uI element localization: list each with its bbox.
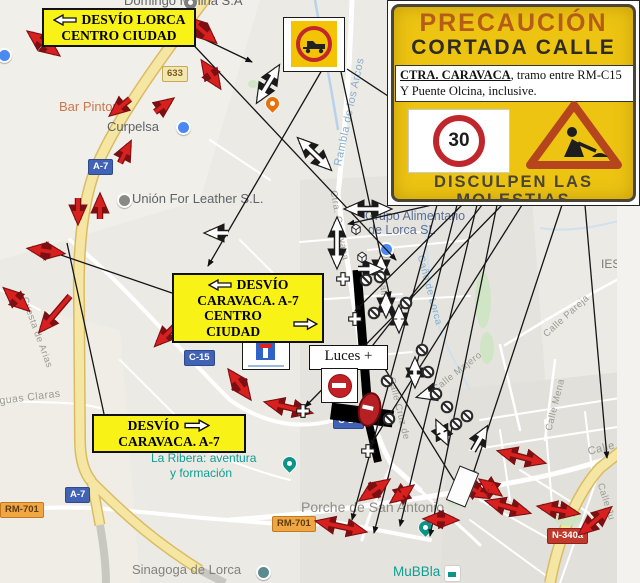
traffic-lights-label: Luces +: [309, 345, 388, 370]
no-entry-icon: [369, 308, 380, 319]
crossing-icon: [337, 273, 350, 286]
sign-detail-rest: , tramo entre RM-C15: [511, 68, 622, 82]
dead-end-icon: [256, 341, 275, 360]
block-icon: [358, 252, 366, 263]
sign-detail: CTRA. CARAVACA, tramo entre RM-C15 Y Pue…: [395, 65, 636, 102]
sign-subtitle: CORTADA CALLE: [394, 36, 633, 59]
no-entry-icon: [462, 411, 473, 422]
no-entry-icon: [384, 414, 395, 425]
no-entry-sign-box: [321, 368, 358, 403]
arrow-left-icon: [208, 279, 232, 291]
arrow-right-icon: [184, 419, 210, 432]
arrow-left-icon: [53, 14, 77, 26]
no-entry-icon: [431, 389, 442, 400]
no-entry-icon: [401, 298, 412, 309]
no-trucks-sign-box: [283, 17, 345, 72]
sign-detail-road: CTRA. CARAVACA: [400, 68, 511, 82]
no-entry-icon: [382, 376, 393, 387]
sign-title: PRECAUCIÓN: [394, 11, 633, 36]
annotated-map: Domingo Molina S.A Bar Pintor Curpelsa U…: [0, 0, 640, 583]
arrow-right-icon: [293, 317, 318, 331]
detour-text: DESVÍO LORCA: [82, 12, 186, 28]
no-entry-icon: [417, 345, 428, 356]
sign-detail-line2: Y Puente Olcina, inclusive.: [400, 84, 537, 98]
detour-label-caravaca-centro: DESVÍO CARAVACA. A-7 CENTRO CIUDAD: [172, 273, 324, 343]
detour-text: DESVÍO: [128, 418, 180, 434]
detour-label-caravaca: DESVÍO CARAVACA. A-7: [92, 414, 246, 453]
detour-text: DESVÍO: [237, 277, 289, 293]
detour-label-lorca: DESVÍO LORCA CENTRO CIUDAD: [42, 8, 196, 47]
speed-limit-sign-box: 30: [408, 109, 510, 173]
detour-text: CENTRO CIUDAD: [48, 28, 190, 44]
no-entry-red-icon: [328, 374, 352, 398]
speed-limit-30-icon: 30: [433, 115, 485, 167]
sign-apology-1: DISCULPEN LAS: [394, 173, 633, 191]
precaucion-sign: PRECAUCIÓN CORTADA CALLE CTRA. CARAVACA,…: [387, 0, 640, 206]
roadworks-icon: [522, 99, 626, 173]
detour-text: CARAVACA. A-7: [98, 434, 240, 450]
no-entry-icon: [451, 419, 462, 430]
detour-text: CARAVACA. A-7: [178, 293, 318, 309]
no-entry-icon: [361, 275, 372, 286]
no-entry-icon: [423, 367, 434, 378]
no-trucks-icon: [294, 24, 334, 64]
block-icon: [352, 224, 360, 235]
no-entry-icon: [442, 402, 453, 413]
sign-apology-2: MOLESTIAS: [394, 191, 633, 202]
no-entry-icon: [375, 272, 386, 283]
detour-text: CENTRO CIUDAD: [178, 308, 288, 339]
